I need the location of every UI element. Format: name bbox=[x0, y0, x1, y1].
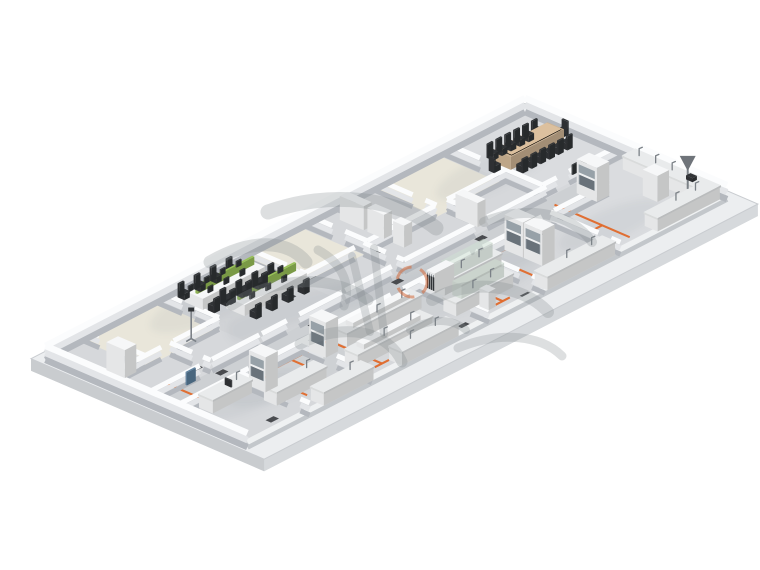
floorplan-page: 3D isometric rendering of a laboratory a… bbox=[0, 0, 760, 570]
floorplan-render bbox=[0, 0, 760, 570]
storage-cabinet bbox=[106, 336, 136, 378]
fume-hood bbox=[577, 153, 610, 202]
storage-cabinet bbox=[643, 164, 669, 202]
fume-hood bbox=[249, 344, 278, 393]
storage-cabinet bbox=[393, 217, 412, 248]
fume-hood bbox=[524, 217, 555, 266]
